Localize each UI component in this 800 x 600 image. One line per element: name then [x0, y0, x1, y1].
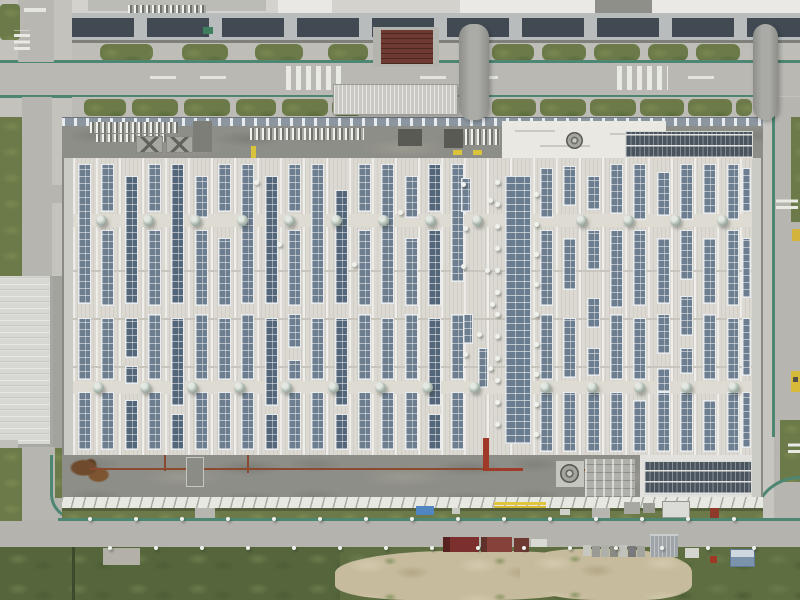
solar-panel-strip — [241, 164, 254, 304]
bollard — [752, 546, 756, 550]
connector-tube — [753, 24, 778, 120]
vent-dome — [234, 382, 245, 393]
vent-cap — [488, 198, 493, 203]
solar-panel-strip — [478, 348, 488, 388]
solar-panel-strip — [78, 318, 91, 380]
solar-panel-strip — [381, 318, 394, 380]
vent-dome — [670, 215, 681, 226]
solar-panel-strip — [680, 392, 693, 452]
solar-panel-strip — [195, 176, 208, 218]
vent-cap — [485, 268, 490, 273]
solar-panel-strip — [335, 414, 348, 450]
fan-unit — [566, 132, 583, 149]
solar-panel-strip — [727, 318, 739, 380]
vent-cap — [534, 342, 539, 347]
yellow-pipe-rack — [494, 506, 546, 508]
bollard — [88, 517, 92, 521]
solar-panel-strip — [742, 168, 751, 212]
solar-panel-strip — [148, 392, 161, 450]
bollard — [614, 546, 618, 550]
vent-cap — [463, 352, 468, 357]
vent-dome — [472, 215, 483, 226]
vent-dome — [96, 215, 107, 226]
vent-cap — [490, 302, 495, 307]
solar-panel-strip — [218, 238, 231, 306]
vent-cap — [352, 262, 357, 267]
solar-panel-strip — [742, 318, 751, 376]
vent-cap — [488, 366, 493, 371]
vent-cap — [461, 264, 466, 269]
vent-cap — [495, 180, 500, 185]
bollard — [660, 546, 664, 550]
solar-panel-strip — [405, 238, 418, 306]
truck-cab — [443, 537, 450, 552]
vent-cap — [463, 226, 468, 231]
vent-dome — [728, 382, 739, 393]
grass-island — [84, 99, 126, 116]
rust-pipe-vertical — [164, 455, 166, 471]
building-shadow — [62, 508, 763, 511]
solar-panel-strip — [587, 230, 600, 270]
solar-panel-strip — [563, 238, 576, 290]
solar-panel-strip — [405, 314, 418, 380]
roof-mark — [515, 130, 555, 132]
roof-mark — [540, 145, 590, 147]
vent-cap — [495, 224, 500, 229]
solar-panel-strip — [381, 164, 394, 304]
equipment-box — [643, 503, 655, 513]
solar-panel-strip — [265, 414, 278, 450]
solar-panel-strip — [171, 414, 184, 450]
solar-panel-strip — [288, 164, 301, 212]
building-south-band — [62, 497, 763, 508]
solar-panel-strip — [742, 392, 751, 448]
vent-dome — [237, 215, 248, 226]
bollard — [706, 546, 710, 550]
road-west — [22, 97, 52, 277]
grass-island — [328, 44, 368, 61]
lane-dash — [200, 76, 226, 79]
solar-panel-strip — [265, 318, 278, 406]
hvac-unit — [166, 136, 193, 153]
vent-dome — [587, 382, 598, 393]
grass-island — [492, 99, 536, 116]
container — [583, 545, 591, 556]
solar-panel-strip — [148, 314, 161, 380]
grass-island — [255, 44, 303, 61]
bollard — [384, 546, 388, 550]
solar-panel-strip — [78, 392, 91, 450]
grass-island — [184, 99, 230, 116]
louver-rack — [309, 128, 364, 140]
container-large — [650, 534, 678, 557]
solar-panel-strip — [218, 318, 231, 380]
solar-panel-strip — [311, 318, 324, 380]
solar-panel-strip — [563, 392, 576, 452]
grass-island — [540, 99, 586, 116]
solar-panel-strip — [540, 392, 553, 452]
vent-dome — [681, 382, 692, 393]
grass-island — [282, 99, 328, 116]
container — [628, 546, 636, 557]
solar-panel-strip — [101, 392, 114, 450]
solar-panel-strip — [633, 318, 646, 380]
solar-panel-strip — [540, 230, 553, 306]
vent-dome — [328, 382, 339, 393]
grass-island — [696, 44, 740, 61]
solar-panel-strip — [241, 314, 254, 380]
bollard — [410, 517, 414, 521]
bollard — [318, 517, 322, 521]
pv-array-bottom — [644, 461, 752, 495]
vent-dome — [143, 215, 154, 226]
gap-strip — [53, 276, 62, 452]
vent-dome — [469, 382, 480, 393]
fan-unit — [560, 464, 579, 483]
solar-panel-strip — [288, 360, 301, 380]
solar-panel-strip — [610, 392, 623, 452]
wing-building — [0, 276, 53, 447]
grass-island — [640, 99, 684, 116]
bollard — [292, 546, 296, 550]
vent-cap — [534, 222, 539, 227]
solar-panel-strip — [288, 230, 301, 306]
grass-island — [182, 44, 228, 61]
vent-dome — [281, 382, 292, 393]
solar-panel-strip — [428, 164, 441, 212]
vent-dome — [378, 215, 389, 226]
rust-pipe — [90, 468, 488, 470]
solar-panel-strip — [657, 314, 670, 354]
pv-array-top — [625, 131, 753, 159]
container — [601, 545, 609, 557]
facade-accent-green — [203, 27, 213, 34]
bollard — [246, 546, 250, 550]
solar-panel-strip — [195, 230, 208, 306]
solar-panel-strip — [78, 164, 91, 304]
solar-panel-strip — [405, 392, 418, 450]
lane-dash — [150, 76, 176, 79]
solar-panel-strip — [657, 238, 670, 304]
grass-island — [736, 99, 752, 116]
yellow-mark — [453, 150, 462, 155]
solar-panel-strip — [358, 164, 371, 212]
vent-dome — [331, 215, 342, 226]
equipment-cabinet — [186, 457, 204, 487]
container — [637, 546, 645, 557]
vent-cap — [495, 378, 500, 383]
bollard — [108, 546, 112, 550]
solar-panel-strip — [633, 164, 646, 220]
vent-dome — [422, 382, 433, 393]
vent-cap — [495, 356, 500, 361]
solar-panel-strip — [101, 318, 114, 380]
solar-panel-strip — [311, 392, 324, 450]
solar-panel-strip — [125, 366, 138, 384]
road-south — [0, 521, 800, 547]
solar-panel-strip — [657, 392, 670, 452]
solar-panel-strip — [563, 166, 576, 206]
solar-panel-strip — [540, 314, 553, 380]
solar-panel-strip — [148, 164, 161, 212]
solar-panel-strip — [335, 318, 348, 406]
solar-panel-strip — [703, 164, 716, 214]
solar-panel-strip — [680, 164, 693, 220]
vent-cap — [495, 334, 500, 339]
lane-dash — [420, 76, 446, 79]
solar-panel-strip — [451, 392, 464, 450]
solar-panel-strip — [703, 314, 716, 380]
solar-panel-strip — [405, 176, 418, 218]
bollard — [180, 517, 184, 521]
vent-dome — [540, 382, 551, 393]
solar-panel-strip — [463, 314, 473, 344]
solar-panel-strip — [428, 318, 441, 406]
container — [592, 546, 600, 557]
connector-tube — [459, 24, 489, 120]
vent-cap — [495, 246, 500, 251]
vent-dome — [93, 382, 104, 393]
red-roof — [381, 30, 433, 64]
solar-panel-strip — [218, 392, 231, 450]
bollard — [548, 517, 552, 521]
crosswalk-east — [776, 197, 798, 209]
green-line-east — [772, 97, 775, 437]
solar-panel-strip — [195, 314, 208, 380]
vent-dome — [187, 382, 198, 393]
building-wall-east — [752, 117, 763, 508]
vehicle-yellow-small — [792, 229, 800, 241]
solar-panel-strip — [125, 176, 138, 304]
solar-panel-strip — [680, 296, 693, 336]
yellow-pipe-rack — [494, 502, 546, 505]
red-pipe-horizontal — [483, 468, 523, 471]
solar-panel-strip — [657, 368, 670, 392]
solar-panel-strip — [311, 164, 324, 304]
road-marking-group — [14, 30, 30, 50]
bollard — [476, 546, 480, 550]
bollard — [594, 517, 598, 521]
aerial-factory-photo — [0, 0, 800, 600]
solar-panel-strip — [610, 314, 623, 380]
vent-cap — [495, 400, 500, 405]
solar-panel-strip — [288, 314, 301, 348]
vent-dome — [375, 382, 386, 393]
grass-west — [0, 117, 22, 277]
vent-dome — [140, 382, 151, 393]
bollard — [456, 517, 460, 521]
equipment-box — [624, 502, 640, 514]
solar-panel-strip — [358, 314, 371, 380]
equipment-rack — [444, 129, 463, 148]
field-left — [0, 547, 340, 600]
road-marking — [24, 8, 46, 12]
box-red — [710, 556, 717, 563]
solar-panel-strip — [680, 348, 693, 374]
vent-cap — [254, 180, 259, 185]
building-wall-west — [62, 117, 73, 508]
truck-red — [514, 538, 529, 552]
vent-cap — [534, 192, 539, 197]
vent-cap — [398, 210, 403, 215]
bollard — [134, 517, 138, 521]
road-spur — [50, 185, 62, 203]
solar-panel-strip — [358, 230, 371, 306]
container-blue — [730, 549, 755, 567]
concrete-pad — [103, 548, 140, 565]
vent-cap — [534, 252, 539, 257]
lane-dash — [688, 76, 714, 79]
vent-cap — [495, 422, 500, 427]
vent-dome — [576, 215, 587, 226]
vent-dome — [623, 215, 634, 226]
bollard — [732, 517, 736, 521]
bollard — [430, 546, 434, 550]
solar-panel-strip — [563, 318, 576, 378]
grass-island — [688, 99, 732, 116]
solar-panel-strip — [587, 176, 600, 210]
bollard — [522, 546, 526, 550]
vent-cap — [534, 402, 539, 407]
vent-dome — [190, 215, 201, 226]
hvac-unit — [136, 136, 163, 153]
solar-panel-strip — [195, 392, 208, 450]
barrier-row — [531, 539, 547, 547]
solar-panel-strip — [633, 230, 646, 306]
bollard — [568, 546, 572, 550]
solar-panel-strip — [610, 164, 623, 214]
vent-cap — [477, 332, 482, 337]
equipment-shed — [662, 501, 690, 518]
solar-panel-strip — [428, 230, 441, 306]
vent-cap — [277, 242, 282, 247]
rust-stain — [70, 455, 116, 487]
solar-panel-strip — [101, 230, 114, 306]
vent-cap — [461, 182, 466, 187]
louver-rack — [465, 129, 500, 145]
vent-cap — [495, 268, 500, 273]
bollard — [226, 517, 230, 521]
vent-dome — [717, 215, 728, 226]
solar-panel-strip — [335, 190, 348, 304]
solar-panel-strip — [540, 168, 553, 218]
solar-panel-strip — [125, 400, 138, 450]
grass-island — [492, 44, 534, 61]
truck-cab — [481, 537, 487, 552]
solar-panel-strip — [703, 238, 716, 304]
solar-panel-strip — [148, 230, 161, 306]
vent-cap — [534, 432, 539, 437]
solar-panel-strip — [171, 318, 184, 406]
bollard — [154, 546, 158, 550]
vent-cap — [495, 290, 500, 295]
grass-island — [594, 44, 640, 61]
bollard — [272, 517, 276, 521]
solar-panel-strip — [610, 230, 623, 308]
bollard — [640, 517, 644, 521]
vent-cap — [495, 202, 500, 207]
bollard — [364, 517, 368, 521]
grass-island — [132, 99, 178, 116]
vent-cap — [534, 282, 539, 287]
tarp-blue — [416, 506, 434, 515]
grass-island — [648, 44, 688, 61]
solar-panel-strip — [727, 164, 739, 220]
crosswalk — [617, 66, 668, 90]
fence-shadow — [72, 547, 75, 600]
south-service-strip — [62, 455, 640, 497]
bollard — [502, 517, 506, 521]
vent-cap — [534, 372, 539, 377]
bollard — [338, 546, 342, 550]
solar-panel-strip — [633, 400, 646, 452]
solar-panel-strip — [587, 348, 600, 376]
red-pipe-vertical — [483, 438, 489, 471]
bollard — [200, 546, 204, 550]
solar-panel-strip — [381, 392, 394, 450]
solar-panel-strip — [727, 392, 739, 452]
solar-panel-strip — [241, 392, 254, 450]
box-white — [685, 548, 699, 558]
solar-panel-strip — [125, 318, 138, 358]
solar-panel-strip — [288, 392, 301, 450]
vent-dome — [425, 215, 436, 226]
vent-dome — [284, 215, 295, 226]
solar-panel-strip — [428, 414, 441, 450]
solar-panel-strip — [587, 392, 600, 452]
solar-panel-strip — [657, 172, 670, 216]
walkway-canopy — [333, 84, 458, 115]
grass-island — [236, 99, 276, 116]
equipment-cabinet — [193, 121, 212, 152]
solar-panel-strip — [265, 176, 278, 304]
solar-panel-strip — [505, 176, 531, 444]
walkway-structure — [585, 459, 635, 497]
louver-rack — [90, 122, 178, 133]
solar-panel-strip — [742, 238, 751, 298]
bollard — [686, 517, 690, 521]
vehicle-yellow-truck-window — [793, 377, 798, 382]
rust-pipe-vertical — [247, 455, 249, 473]
crosswalk-east — [788, 441, 800, 453]
grass-island — [542, 44, 586, 61]
solar-panel-strip — [218, 164, 231, 212]
louver-rack — [250, 128, 306, 140]
grass-island — [590, 99, 636, 116]
solar-panel-strip — [680, 230, 693, 280]
solar-panel-strip — [101, 164, 114, 212]
solar-panel-strip — [703, 400, 716, 452]
container — [619, 545, 627, 557]
equipment-small — [452, 508, 460, 514]
equipment-small — [560, 509, 570, 515]
vent-cap — [495, 312, 500, 317]
equipment-rack — [398, 129, 422, 146]
grass-island — [100, 44, 153, 61]
solar-panel-strip — [727, 230, 739, 306]
solar-panel-strip — [358, 392, 371, 450]
vent-cap — [534, 312, 539, 317]
solar-panel-strip — [171, 164, 184, 304]
yellow-mark — [473, 150, 482, 155]
solar-panel-strip — [587, 298, 600, 328]
vent-dome — [634, 382, 645, 393]
